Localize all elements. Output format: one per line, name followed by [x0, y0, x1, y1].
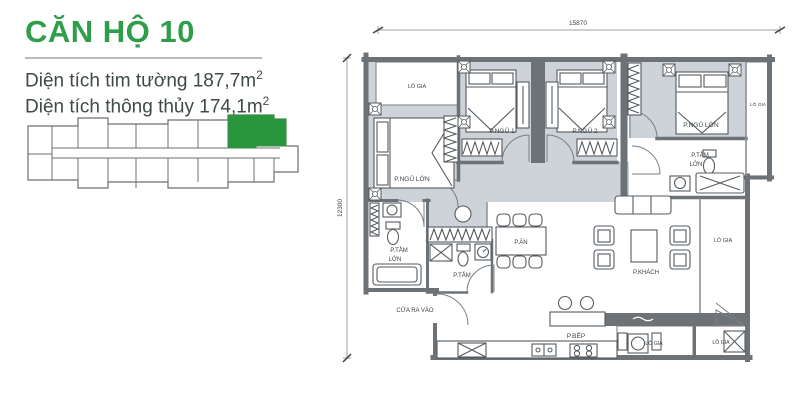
- floor-plan: 1587012300LÔ GIAP.NGỦ LỚNP.NGỦ 1P.NGỦ 2P…: [330, 0, 800, 400]
- loggia-right-big: [700, 198, 748, 322]
- label-logia-right-big: LÔ GIA: [714, 237, 733, 244]
- label-bath-mid: P.TẮM: [453, 271, 471, 279]
- balcony-parapet-wall: [605, 313, 748, 326]
- label-logia-top-left: LÔ GIA: [408, 83, 427, 90]
- area-wall-center-text: Diện tích tim tường 187,7m: [25, 70, 256, 91]
- label-bath-large-right-line1: P.TẮM: [691, 151, 709, 159]
- wardrobe-master-left: [444, 116, 458, 162]
- wardrobe-bed1: [462, 139, 502, 156]
- bed-1: [466, 70, 516, 132]
- label-master-bedroom-left: P.NGỦ LỚN: [394, 174, 430, 183]
- hall-cabinet: [428, 227, 492, 242]
- nightstand-icon: [458, 61, 470, 73]
- nightstand-icon: [729, 64, 741, 76]
- label-logia-bottom-2: LÔ GIA: [712, 339, 730, 346]
- nightstand-icon: [663, 64, 675, 76]
- label-bedroom-1: P.NGỦ 1: [489, 126, 515, 135]
- label-bedroom-2: P.NGỦ 2: [572, 126, 598, 135]
- building-keyplan: [22, 110, 300, 194]
- kitchen-counter: [437, 341, 617, 358]
- title-divider: [25, 57, 262, 59]
- page: { "panel": { "title": "CĂN HỘ 10", "area…: [0, 0, 800, 400]
- loggia-right-top: [746, 62, 770, 176]
- label-bath-large-left-line1: P.TẮM: [390, 246, 408, 254]
- bar-stool: [581, 297, 594, 310]
- nightstand-icon: [603, 116, 615, 128]
- wardrobe-bed2: [577, 139, 617, 156]
- label-entrance: CỬA RA VÀO: [396, 307, 433, 314]
- hall-lamp: [455, 206, 471, 222]
- info-panel: CĂN HỘ 10 Diện tích tim tường 187,7m2 Di…: [25, 14, 320, 121]
- label-logia-right-top: LÔ GIA: [750, 101, 767, 108]
- label-logia-bottom-1: LÔ GIA: [645, 340, 663, 347]
- area-wall-center-sup: 2: [256, 68, 263, 82]
- highlighted-unit-10: [228, 115, 286, 148]
- nightstand-icon: [458, 116, 470, 128]
- area-wall-center: Diện tích tim tường 187,7m2: [25, 68, 320, 93]
- dim-width-label: 15870: [569, 20, 587, 27]
- apartment-title: CĂN HỘ 10: [25, 14, 320, 50]
- nightstand-icon: [369, 188, 381, 200]
- bar-stool: [559, 297, 572, 310]
- label-bath-large-right-line2: LỚN: [690, 161, 703, 168]
- label-master-bedroom-right: P.NGỦ LỚN: [683, 120, 719, 129]
- label-living: P.KHÁCH: [633, 269, 659, 276]
- nightstand-icon: [603, 61, 615, 73]
- label-dining: P.ĂN: [514, 239, 527, 246]
- area-clear-sup: 2: [263, 94, 270, 108]
- nightstand-icon: [369, 103, 381, 115]
- label-bath-large-left-line2: LỚN: [389, 256, 402, 263]
- dim-height-label: 12300: [337, 199, 344, 217]
- coffee-table: [631, 230, 657, 262]
- wardrobe-master-right: [628, 63, 641, 115]
- bed-2: [557, 70, 607, 132]
- center-pillar-wall: [531, 57, 545, 163]
- stove: [570, 344, 597, 357]
